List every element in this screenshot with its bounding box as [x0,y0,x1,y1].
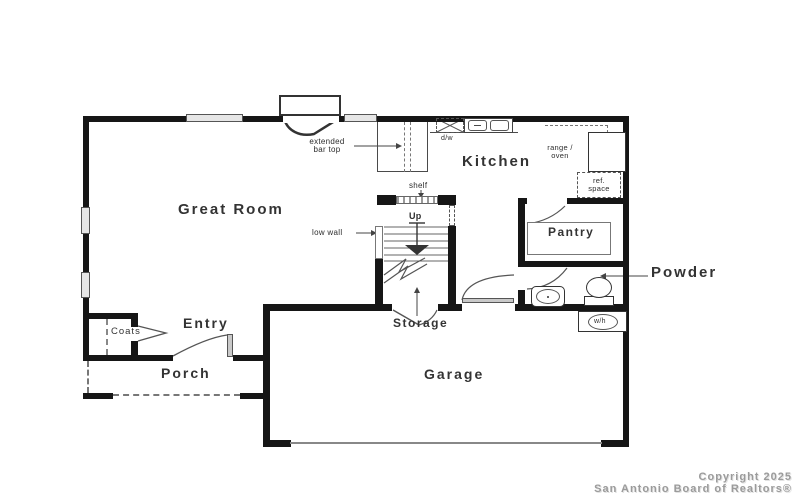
coats-door [138,326,166,341]
annotation-range-oven: range / oven [537,144,583,160]
powder-sink-drain [547,296,549,298]
room-label-coats: Coats [111,327,141,337]
porch-edge-dashed [113,394,240,396]
room-label-entry: Entry [183,316,229,331]
wall-pantry-powder-divider [518,261,629,267]
extended-bar-top-line2: bar top [313,145,340,154]
wall-garage-corner-left [263,440,291,447]
up-arrow-icon [405,223,429,255]
wall-hall-powder [518,290,525,311]
window-top-1 [186,114,243,122]
garage-door-line [290,442,602,444]
wall-front-left [83,355,173,361]
range-oven-box [588,132,626,172]
room-label-storage: Storage [393,317,448,330]
copyright-line2: San Antonio Board of Realtors® [594,484,792,496]
annotation-extended-bar-top: extended bar top [300,138,354,155]
garage-entry-door-leaf [462,298,514,303]
bar-counter-right-edge [427,122,428,172]
wall-garage-top-a [263,304,392,311]
bar-overhang-dash-1 [404,122,405,172]
wall-stair-left-lower [375,258,383,304]
stair-break-line [384,258,427,283]
bar-overhang-dash-2 [410,122,411,172]
shelf-hatch [396,196,438,204]
wall-porch-stub-left [83,393,113,399]
wall-garage-top-b [438,304,462,311]
stair-treads [384,227,448,261]
annotation-shelf: shelf [409,182,427,190]
wall-hall-pantry [518,198,525,267]
annotation-dishwasher: d/w [441,135,453,142]
window-left-2 [81,272,90,298]
wall-garage-corner-right [601,440,629,447]
room-label-powder: Powder [651,265,717,281]
garage-entry-door-swing [462,275,514,300]
porch-left-dashed [87,361,89,393]
entry-door-leaf [227,334,233,357]
bar-counter-bottom-edge [377,171,428,172]
bar-counter-left-edge [377,122,378,172]
window-left-1 [81,207,90,234]
sink-faucet-mark [474,125,481,126]
room-label-kitchen: Kitchen [462,154,531,170]
annotation-ref-space: ref. space [579,177,619,193]
window-top-2 [344,114,377,122]
wall-garage-left [263,304,270,447]
sink-basin-right [490,120,509,131]
room-label-porch: Porch [161,366,211,381]
low-wall-segment [375,226,383,259]
wall-porch-stub-right [240,393,270,399]
upper-cabinet-dashed [545,125,608,126]
storage-leader [414,287,420,316]
wall-shelf-end-right [438,195,456,205]
range-oven-line2: oven [551,151,568,160]
annotation-water-heater: w/h [594,318,606,325]
wall-coats-stub-b [131,341,138,357]
plan-linework [0,0,800,500]
wall-stair-right [448,226,456,304]
copyright-line1: Copyright 2025 [594,472,792,484]
wall-exterior-left [83,116,89,361]
room-label-garage: Garage [424,367,484,382]
wall-pantry-top-b [567,198,629,204]
copyright-notice: Copyright 2025 San Antonio Board of Real… [594,472,792,495]
extended-bar-top-leader [354,143,402,149]
fireplace-box [279,95,341,116]
dishwasher-box [436,118,464,133]
toilet-bowl-icon [586,277,612,298]
wall-shelf-end-left [377,195,396,205]
floor-plan: Great Room Kitchen Pantry Powder Entry P… [0,0,800,500]
coats-rod-dashed [106,319,108,355]
entry-door-swing [173,335,227,356]
annotation-up: Up [409,212,422,221]
stair-dashed-cabinet [449,205,455,226]
room-label-great-room: Great Room [178,202,284,218]
ref-space-line2: space [588,184,610,193]
room-label-pantry: Pantry [548,226,594,239]
low-wall-leader [356,230,377,236]
annotation-low-wall: low wall [312,229,342,237]
